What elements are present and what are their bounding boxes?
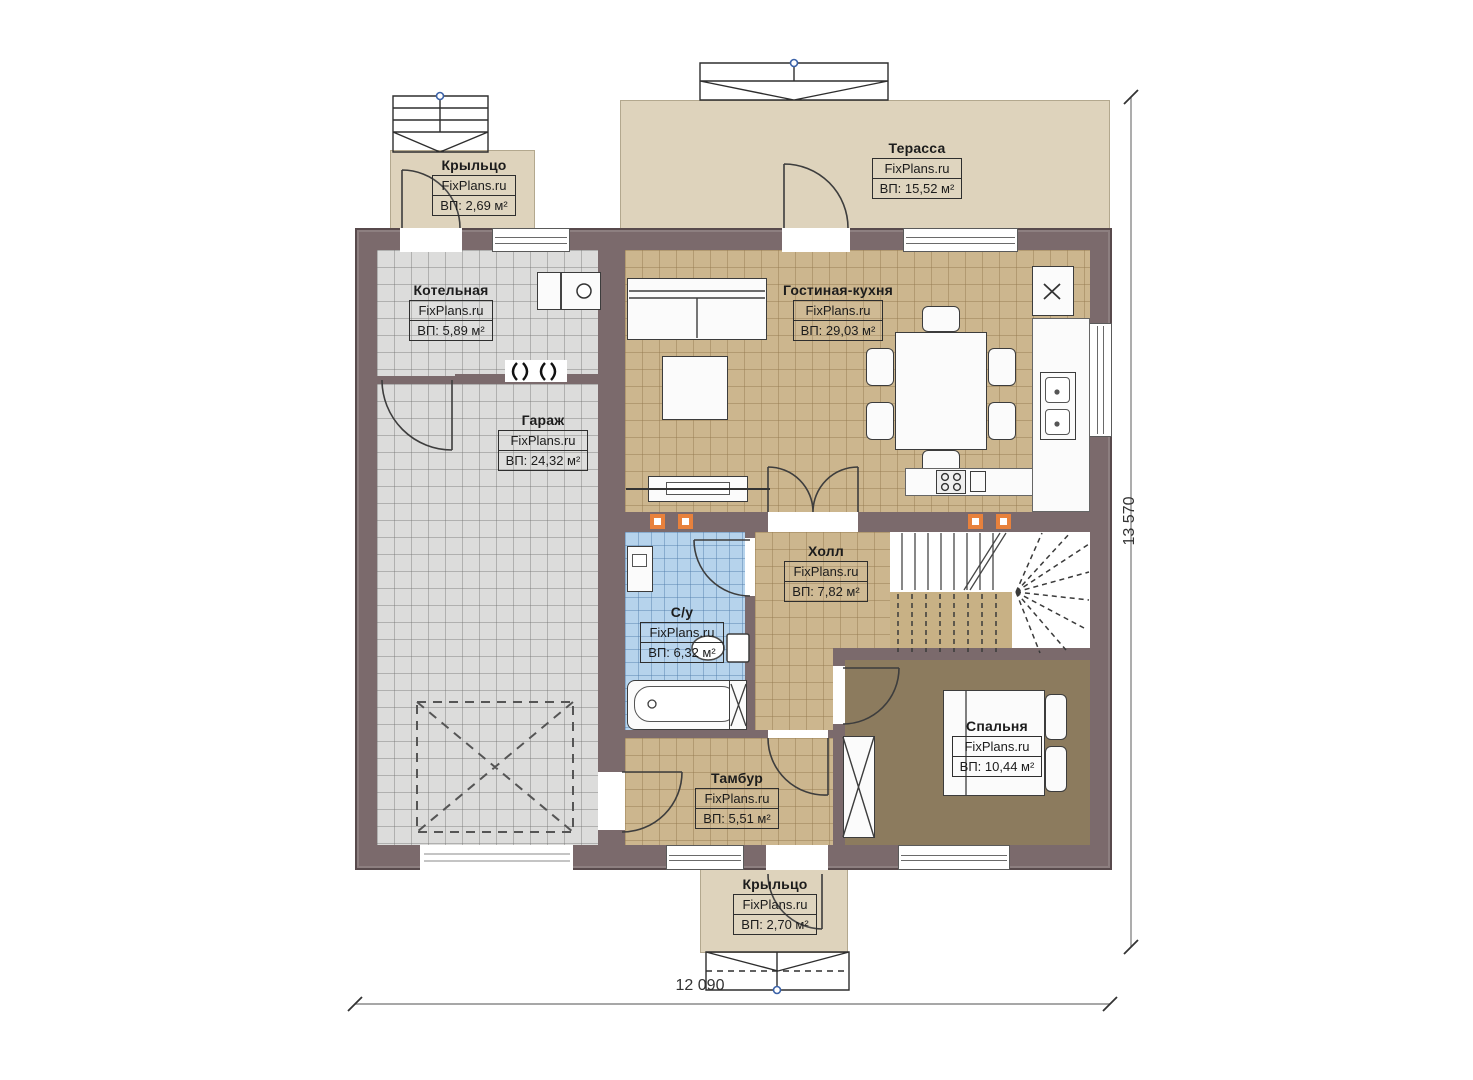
chair bbox=[866, 348, 894, 386]
room-area: ВП: 29,03 м² bbox=[794, 320, 883, 340]
wall-marker bbox=[996, 514, 1011, 529]
wall-marker bbox=[650, 514, 665, 529]
room-area: ВП: 24,32 м² bbox=[499, 450, 588, 470]
room-title: Холл bbox=[761, 543, 891, 559]
room-area: ВП: 7,82 м² bbox=[785, 581, 866, 601]
brand-watermark: FixPlans.ru bbox=[953, 737, 1042, 756]
brand-watermark: FixPlans.ru bbox=[641, 623, 722, 642]
floor-plan: Крыльцо FixPlans.ruВП: 2,69 м² Терасса F… bbox=[0, 0, 1473, 1080]
label-bedroom: Спальня FixPlans.ruВП: 10,44 м² bbox=[932, 718, 1062, 777]
kitchen-sink bbox=[1040, 372, 1076, 440]
boiler-unit bbox=[537, 272, 601, 310]
kitchen-small-unit bbox=[970, 471, 986, 492]
wall-left-zone bbox=[598, 250, 625, 846]
window-vestibule bbox=[666, 845, 744, 870]
wall-marker bbox=[678, 514, 693, 529]
room-area: ВП: 5,51 м² bbox=[696, 808, 777, 828]
window-kitchen-top bbox=[903, 228, 1018, 252]
room-area: ВП: 6,32 м² bbox=[641, 642, 722, 662]
door-gap-porch-boiler bbox=[400, 228, 462, 252]
window-kitchen-right bbox=[1088, 323, 1112, 437]
brand-watermark: FixPlans.ru bbox=[410, 301, 491, 320]
brand-watermark: FixPlans.ru bbox=[499, 431, 588, 450]
room-title: Гараж bbox=[478, 412, 608, 428]
room-title: Крыльцо bbox=[409, 157, 539, 173]
door-gap-living-hall bbox=[768, 512, 858, 532]
window-bedroom bbox=[898, 845, 1010, 870]
room-title: Гостиная-кухня bbox=[773, 282, 903, 298]
door-gap-garage-vestibule bbox=[598, 772, 625, 830]
brand-watermark: FixPlans.ru bbox=[696, 789, 777, 808]
door-gap-vestibule-hall bbox=[768, 730, 828, 738]
coffee-table bbox=[662, 356, 728, 420]
brand-watermark: FixPlans.ru bbox=[873, 159, 962, 178]
room-title: Крыльцо bbox=[710, 876, 840, 892]
kitchen-counter-bottom bbox=[905, 468, 1033, 496]
stove bbox=[936, 470, 966, 494]
room-area: ВП: 15,52 м² bbox=[873, 178, 962, 198]
staircase-lower-steps bbox=[890, 592, 1012, 648]
label-vestibule: Тамбур FixPlans.ruВП: 5,51 м² bbox=[672, 770, 802, 829]
chair bbox=[866, 402, 894, 440]
door-gap-terrace bbox=[782, 228, 850, 252]
kitchen-unit-top bbox=[1032, 266, 1074, 316]
room-title: Спальня bbox=[932, 718, 1062, 734]
sofa bbox=[627, 278, 767, 340]
label-porch-bottom: Крыльцо FixPlans.ruВП: 2,70 м² bbox=[710, 876, 840, 935]
door-gap-bedroom bbox=[833, 666, 845, 724]
wall-bedroom-top bbox=[833, 648, 1090, 660]
room-title: Терасса bbox=[852, 140, 982, 156]
chair bbox=[988, 348, 1016, 386]
label-living-kitchen: Гостиная-кухня FixPlans.ruВП: 29,03 м² bbox=[773, 282, 903, 341]
bath-shelf bbox=[729, 680, 747, 730]
chair bbox=[922, 306, 960, 332]
room-title: Тамбур bbox=[672, 770, 802, 786]
label-terrace: Терасса FixPlans.ruВП: 15,52 м² bbox=[852, 140, 982, 199]
room-area: ВП: 10,44 м² bbox=[953, 756, 1042, 776]
room-title: С/у bbox=[617, 604, 747, 620]
garage-gate bbox=[420, 845, 573, 870]
room-area: ВП: 5,89 м² bbox=[410, 320, 491, 340]
label-boiler: Котельная FixPlans.ruВП: 5,89 м² bbox=[386, 282, 516, 341]
tv-console bbox=[648, 476, 748, 502]
door-gap-bathroom bbox=[745, 538, 755, 596]
door-gap-front bbox=[766, 845, 828, 870]
room-title: Котельная bbox=[386, 282, 516, 298]
corridor-floor bbox=[755, 648, 833, 738]
label-bathroom: С/у FixPlans.ruВП: 6,32 м² bbox=[617, 604, 747, 663]
window-boiler bbox=[492, 228, 570, 252]
label-hall: Холл FixPlans.ruВП: 7,82 м² bbox=[761, 543, 891, 602]
brand-watermark: FixPlans.ru bbox=[794, 301, 883, 320]
brand-watermark: FixPlans.ru bbox=[785, 562, 866, 581]
dimension-height: 13 570 bbox=[1121, 486, 1139, 556]
brand-watermark: FixPlans.ru bbox=[734, 895, 815, 914]
dimension-width: 12 090 bbox=[625, 977, 775, 995]
room-area: ВП: 2,70 м² bbox=[734, 914, 815, 934]
label-porch-top: Крыльцо FixPlans.ruВП: 2,69 м² bbox=[409, 157, 539, 216]
wall-boiler-garage bbox=[455, 374, 600, 384]
washing-machine bbox=[627, 546, 653, 592]
brand-watermark: FixPlans.ru bbox=[433, 176, 514, 195]
chair bbox=[988, 402, 1016, 440]
wall-bathroom-bottom bbox=[625, 730, 755, 738]
room-area: ВП: 2,69 м² bbox=[433, 195, 514, 215]
dining-table bbox=[895, 332, 987, 450]
wall-marker bbox=[968, 514, 983, 529]
label-garage: Гараж FixPlans.ruВП: 24,32 м² bbox=[478, 412, 608, 471]
wardrobe bbox=[843, 736, 875, 838]
